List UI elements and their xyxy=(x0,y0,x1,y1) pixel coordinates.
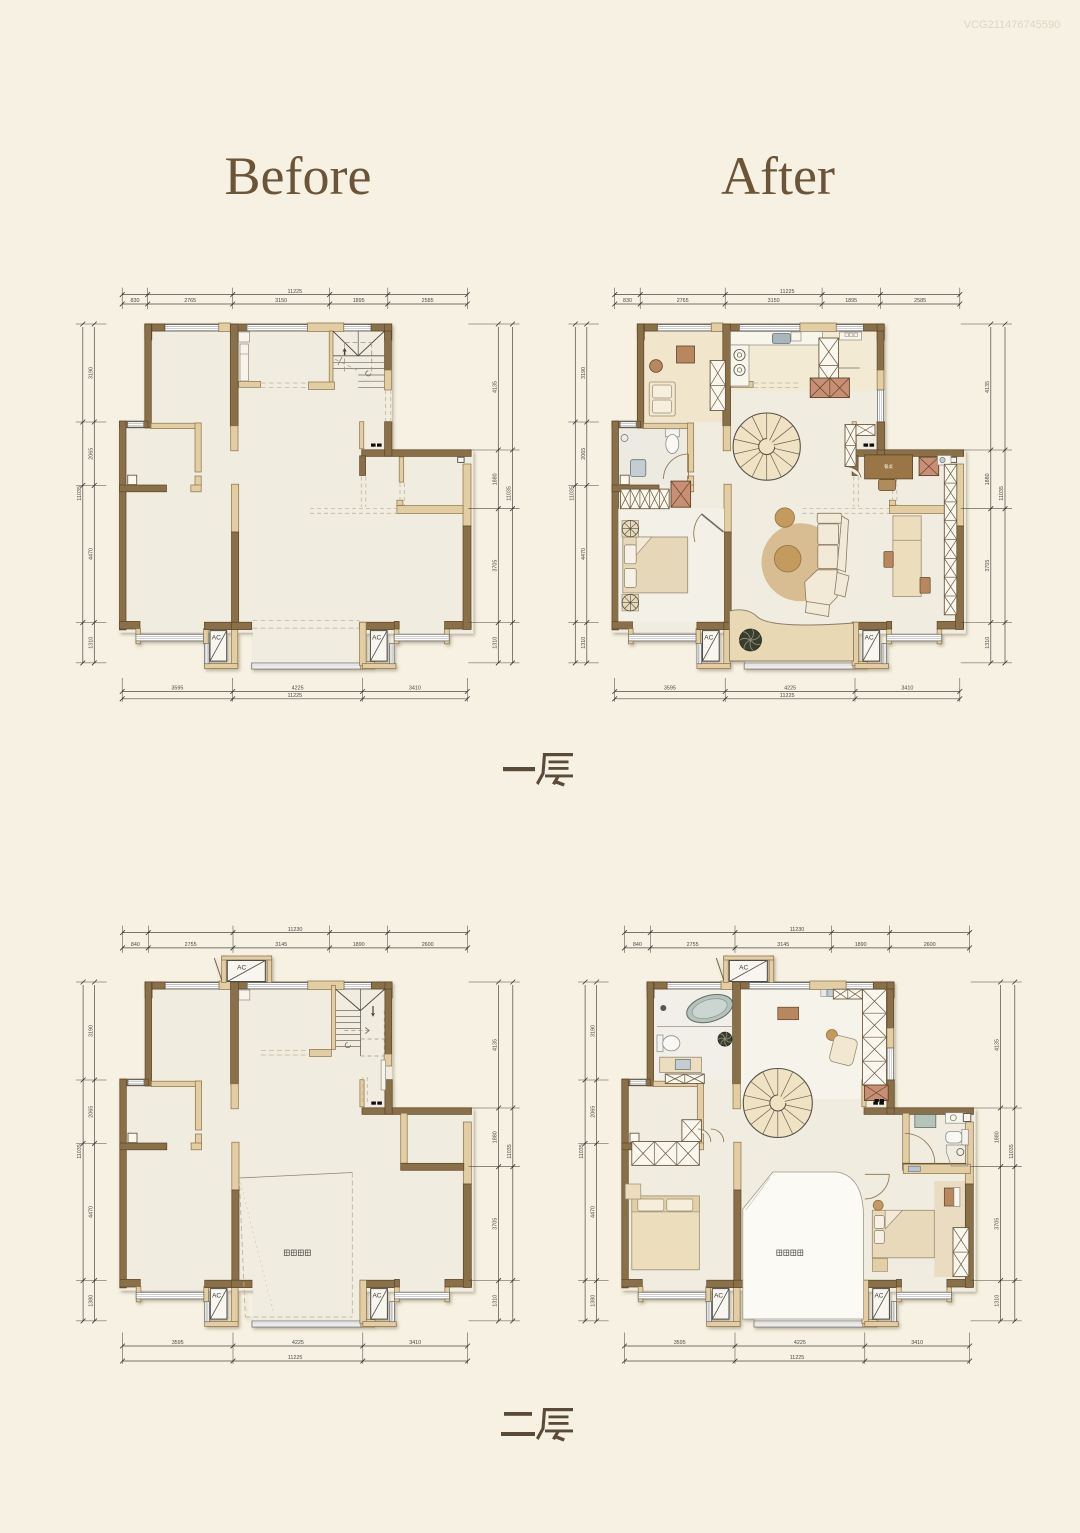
svg-text:2755: 2755 xyxy=(687,942,699,948)
svg-text:3595: 3595 xyxy=(172,1340,184,1346)
svg-text:3410: 3410 xyxy=(409,686,421,692)
svg-text:3190: 3190 xyxy=(89,1025,95,1037)
svg-text:2585: 2585 xyxy=(422,298,434,304)
svg-text:11225: 11225 xyxy=(288,1355,303,1361)
svg-text:11230: 11230 xyxy=(790,927,805,933)
svg-text:餐桌: 餐桌 xyxy=(884,463,893,470)
svg-text:1880: 1880 xyxy=(493,1131,499,1143)
svg-text:1380: 1380 xyxy=(591,1295,597,1307)
svg-text:1895: 1895 xyxy=(845,298,857,304)
svg-text:2600: 2600 xyxy=(924,942,936,948)
svg-text:4470: 4470 xyxy=(89,1206,95,1218)
svg-text:830: 830 xyxy=(131,298,140,304)
svg-text:840: 840 xyxy=(633,942,642,948)
svg-text:4225: 4225 xyxy=(794,1340,806,1346)
svg-text:1310: 1310 xyxy=(492,637,498,649)
svg-text:1310: 1310 xyxy=(493,1295,499,1307)
svg-text:1310: 1310 xyxy=(88,637,94,649)
svg-text:11230: 11230 xyxy=(288,927,303,933)
svg-text:AC: AC xyxy=(372,635,381,642)
svg-text:1380: 1380 xyxy=(89,1295,95,1307)
svg-text:AC: AC xyxy=(212,1293,221,1300)
svg-text:4225: 4225 xyxy=(784,686,796,692)
svg-text:11035: 11035 xyxy=(579,1144,585,1159)
svg-text:1880: 1880 xyxy=(995,1131,1001,1143)
svg-text:3190: 3190 xyxy=(88,367,94,379)
svg-text:3595: 3595 xyxy=(664,686,676,692)
svg-text:1310: 1310 xyxy=(985,637,991,649)
svg-text:11225: 11225 xyxy=(780,289,795,295)
svg-text:11225: 11225 xyxy=(288,693,303,699)
svg-text:3705: 3705 xyxy=(985,560,991,572)
svg-text:3595: 3595 xyxy=(171,686,183,692)
svg-text:1880: 1880 xyxy=(985,473,991,485)
svg-text:4135: 4135 xyxy=(493,1039,499,1051)
svg-text:4135: 4135 xyxy=(995,1039,1001,1051)
svg-text:11225: 11225 xyxy=(790,1355,805,1361)
svg-text:4470: 4470 xyxy=(88,548,94,560)
svg-text:3150: 3150 xyxy=(768,298,780,304)
svg-text:11225: 11225 xyxy=(780,693,795,699)
svg-text:4225: 4225 xyxy=(292,686,304,692)
svg-text:2585: 2585 xyxy=(914,298,926,304)
svg-text:1890: 1890 xyxy=(353,942,365,948)
svg-text:11035: 11035 xyxy=(569,486,575,501)
svg-text:3145: 3145 xyxy=(275,942,287,948)
svg-text:1310: 1310 xyxy=(995,1295,1001,1307)
svg-text:4470: 4470 xyxy=(581,548,587,560)
svg-text:1890: 1890 xyxy=(855,942,867,948)
svg-text:11035: 11035 xyxy=(1009,1144,1015,1159)
svg-text:AC: AC xyxy=(704,635,713,642)
svg-text:AC: AC xyxy=(372,1293,381,1300)
svg-text:AC: AC xyxy=(212,635,221,642)
svg-text:2600: 2600 xyxy=(422,942,434,948)
svg-text:1880: 1880 xyxy=(492,473,498,485)
svg-text:3410: 3410 xyxy=(409,1340,421,1346)
svg-text:11035: 11035 xyxy=(999,486,1005,501)
svg-text:2065: 2065 xyxy=(89,1106,95,1118)
svg-text:11035: 11035 xyxy=(77,1144,83,1159)
svg-text:2065: 2065 xyxy=(581,448,587,460)
svg-text:After: After xyxy=(721,146,835,206)
svg-text:3705: 3705 xyxy=(493,1218,499,1230)
svg-text:4225: 4225 xyxy=(292,1340,304,1346)
svg-text:AC: AC xyxy=(865,635,874,642)
svg-text:2065: 2065 xyxy=(88,448,94,460)
svg-text:11035: 11035 xyxy=(77,486,83,501)
svg-text:3190: 3190 xyxy=(591,1025,597,1037)
svg-text:1895: 1895 xyxy=(353,298,365,304)
svg-text:3150: 3150 xyxy=(275,298,287,304)
svg-text:4470: 4470 xyxy=(591,1206,597,1218)
svg-text:AC: AC xyxy=(237,965,246,972)
svg-text:11035: 11035 xyxy=(507,1144,513,1159)
svg-text:2065: 2065 xyxy=(591,1106,597,1118)
svg-text:3190: 3190 xyxy=(581,367,587,379)
svg-text:830: 830 xyxy=(623,298,632,304)
svg-text:3410: 3410 xyxy=(901,686,913,692)
svg-text:3595: 3595 xyxy=(674,1340,686,1346)
svg-text:1310: 1310 xyxy=(581,637,587,649)
svg-text:4135: 4135 xyxy=(492,381,498,393)
svg-text:11035: 11035 xyxy=(507,486,513,501)
svg-text:3410: 3410 xyxy=(911,1340,923,1346)
svg-text:Before: Before xyxy=(225,146,372,206)
svg-text:3705: 3705 xyxy=(492,560,498,572)
svg-text:3145: 3145 xyxy=(777,942,789,948)
svg-text:11225: 11225 xyxy=(288,289,303,295)
svg-text:840: 840 xyxy=(131,942,140,948)
svg-text:2755: 2755 xyxy=(185,942,197,948)
svg-text:AC: AC xyxy=(739,965,748,972)
svg-text:AC: AC xyxy=(714,1293,723,1300)
svg-text:AC: AC xyxy=(874,1293,883,1300)
svg-text:3705: 3705 xyxy=(995,1218,1001,1230)
svg-text:4135: 4135 xyxy=(985,381,991,393)
svg-text:2765: 2765 xyxy=(184,298,196,304)
svg-text:2765: 2765 xyxy=(677,298,689,304)
svg-text:VCG211476745590: VCG211476745590 xyxy=(964,19,1060,31)
